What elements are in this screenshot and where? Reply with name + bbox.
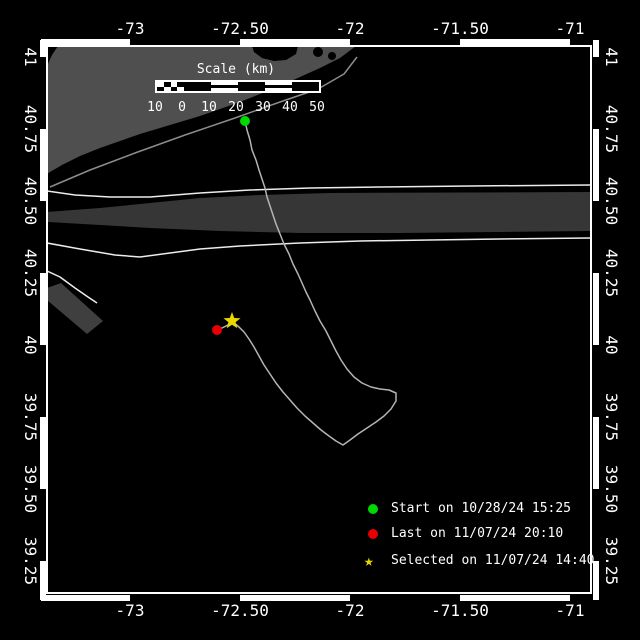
lat-tick-label-right: 40.50: [603, 177, 619, 225]
scalebar-checker-cell: [157, 87, 164, 92]
scalebar-segment-checker: [157, 82, 184, 91]
bay-notch-2: [328, 52, 336, 60]
border-zebra-right: [593, 129, 599, 201]
lat-tick-label-left: 40.25: [22, 249, 38, 297]
border-zebra-top: [460, 39, 570, 45]
scalebar-segment-black: [184, 82, 211, 91]
legend-item-selected: ★ Selected on 11/07/24 14:40: [0, 552, 640, 570]
lat-tick-label-right: 39.50: [603, 465, 619, 513]
scalebar-segment-striped: [265, 82, 292, 91]
lon-tick-label-bottom: -71: [556, 603, 585, 619]
traffic-lane-band: [48, 192, 590, 233]
scalebar-tick-label: 30: [255, 101, 271, 115]
lat-tick-label-right: 39.25: [603, 537, 619, 585]
border-zebra-left: [40, 40, 46, 57]
scalebar-tick-label: 0: [178, 101, 186, 115]
lon-tick-label-bottom: -72.50: [211, 603, 269, 619]
lat-tick-label-left: 40: [22, 335, 38, 354]
lat-tick-label-left: 41: [22, 47, 38, 66]
border-zebra-left: [40, 561, 46, 600]
border-zebra-top: [41, 39, 130, 45]
scalebar-segment-striped: [211, 82, 238, 91]
border-zebra-left: [40, 417, 46, 489]
scalebar-checker-cell: [177, 87, 184, 92]
scalebar-tick-label: 10: [147, 101, 163, 115]
legend-item-start: Start on 10/28/24 15:25: [0, 500, 640, 518]
scalebar-tick-label: 10: [201, 101, 217, 115]
border-zebra-right: [593, 561, 599, 600]
lat-tick-label-right: 41: [603, 47, 619, 66]
border-zebra-right: [593, 273, 599, 345]
lat-tick-label-right: 40: [603, 335, 619, 354]
legend-label-start: Start on 10/28/24 15:25: [391, 500, 571, 518]
last-legend-dot: [368, 529, 378, 539]
lon-tick-label-bottom: -71.50: [431, 603, 489, 619]
scalebar-checker-cell: [164, 87, 171, 92]
lat-tick-label-left: 39.50: [22, 465, 38, 513]
border-zebra-top: [240, 39, 350, 45]
scalebar-tick-label: 40: [282, 101, 298, 115]
border-zebra-left: [40, 129, 46, 201]
scalebar-segment-black: [238, 82, 265, 91]
scalebar: [155, 80, 321, 93]
lat-tick-label-right: 40.25: [603, 249, 619, 297]
lat-tick-label-left: 39.75: [22, 393, 38, 441]
lon-tick-label-bottom: -73: [116, 603, 145, 619]
lon-tick-label-top: -73: [116, 21, 145, 37]
lat-tick-label-right: 39.75: [603, 393, 619, 441]
border-zebra-left: [40, 273, 46, 345]
scalebar-segment-black: [292, 82, 319, 91]
drifter-track: [218, 121, 396, 445]
scalebar-checker-cell: [171, 87, 178, 92]
scalebar-tick-label: 50: [309, 101, 325, 115]
start-marker: [240, 116, 250, 126]
lat-tick-label-right: 40.75: [603, 105, 619, 153]
lon-tick-label-top: -72: [336, 21, 365, 37]
lon-tick-label-top: -71.50: [431, 21, 489, 37]
lat-tick-label-left: 40.50: [22, 177, 38, 225]
selected-star-icon: ★: [364, 553, 374, 569]
bay-notch-1: [313, 47, 323, 57]
lon-tick-label-top: -72.50: [211, 21, 269, 37]
lon-tick-label-bottom: -72: [336, 603, 365, 619]
lat-tick-label-left: 39.25: [22, 537, 38, 585]
start-legend-dot: [368, 504, 378, 514]
lon-tick-label-top: -71: [556, 21, 585, 37]
last-marker: [212, 325, 222, 335]
lat-tick-label-left: 40.75: [22, 105, 38, 153]
legend-label-selected: Selected on 11/07/24 14:40: [391, 552, 595, 570]
map-stage: Scale (km) Start on 10/28/24 15:25 Last …: [0, 0, 640, 640]
lane-boundary-lower: [48, 238, 590, 257]
border-zebra-right: [593, 417, 599, 489]
border-zebra-right: [593, 40, 599, 57]
legend-label-last: Last on 11/07/24 20:10: [391, 525, 563, 543]
scalebar-title: Scale (km): [155, 63, 317, 77]
approach-lane-wedge: [48, 283, 103, 334]
legend-item-last: Last on 11/07/24 20:10: [0, 525, 640, 543]
scalebar-tick-label: 20: [228, 101, 244, 115]
